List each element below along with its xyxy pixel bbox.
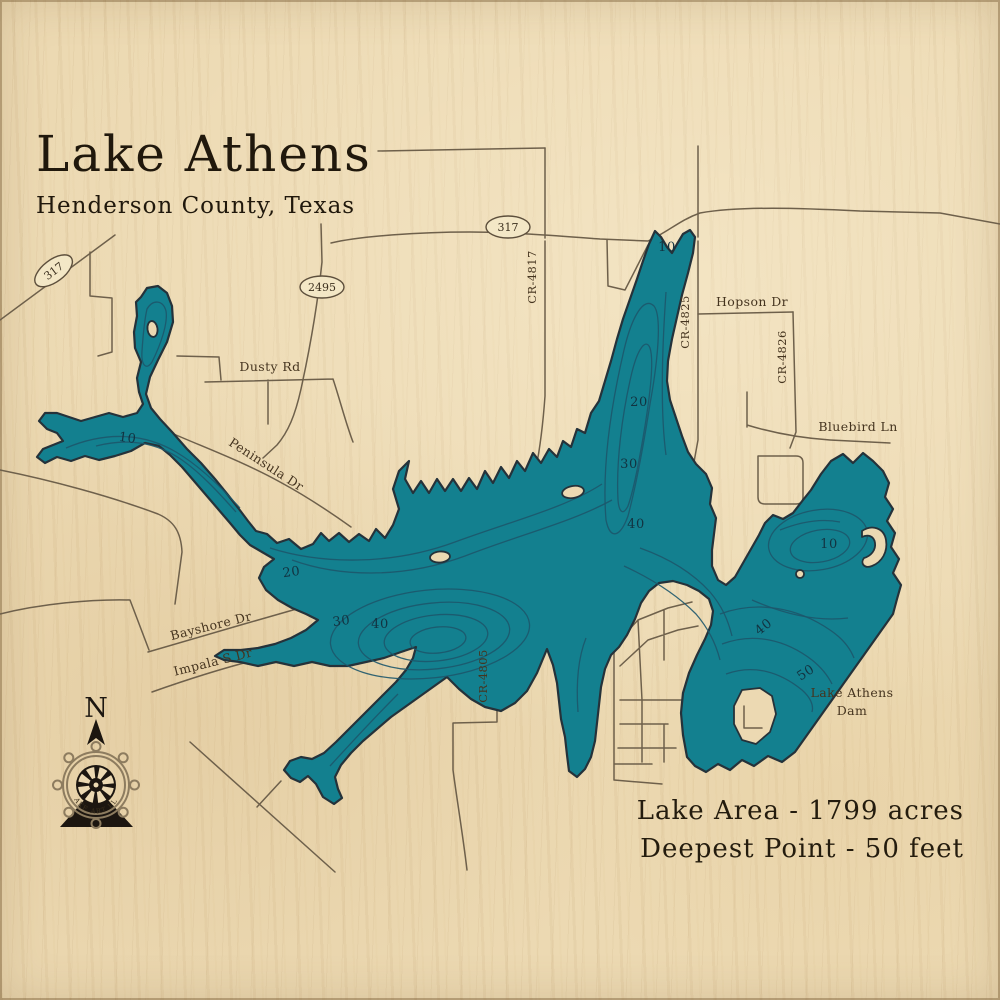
depth-label: 30 — [620, 457, 638, 472]
depth-label: 40 — [627, 517, 645, 532]
road-cr4825 — [694, 146, 698, 462]
road-cr4817 — [536, 148, 545, 468]
depth-label: 40 — [371, 617, 389, 632]
road-peninsula — [160, 428, 351, 527]
road-dusty-west — [177, 356, 221, 380]
road-west-low — [0, 470, 182, 604]
depth-label: 20 — [282, 564, 302, 581]
road-label: Lake Athens — [811, 685, 894, 700]
title-block: Lake Athens Henderson County, Texas — [36, 128, 372, 219]
map-title: Lake Athens — [36, 128, 372, 181]
road-label: Dam — [837, 703, 868, 718]
road-stepped-nw — [90, 252, 112, 356]
road-label: Peninsula Dr — [226, 435, 306, 494]
road-label: Dusty Rd — [239, 359, 300, 374]
road-dusty — [205, 379, 353, 442]
highway-shields: 3173172495 — [29, 216, 530, 298]
road-top-horizontal — [378, 148, 545, 151]
depth-label: 10 — [118, 430, 138, 447]
depth-label: 10 — [820, 537, 838, 552]
road-label: CR-4817 — [525, 250, 539, 303]
road-label: CR-4825 — [678, 295, 692, 348]
wood-map-panel: 3173172495 Dusty RdHopson DrBluebird LnP… — [0, 0, 1000, 1000]
road-bluebird — [747, 392, 890, 443]
highway-shield: 317 — [29, 249, 77, 293]
highway-shield: 317 — [486, 216, 530, 238]
highway-shield: 2495 — [300, 276, 344, 298]
road-2495 — [263, 224, 322, 458]
road-west-edge — [0, 600, 149, 650]
depth-label: 10 — [658, 240, 676, 255]
deepest-point-stat: Deepest Point - 50 feet — [637, 830, 964, 868]
road-cr4826 — [790, 312, 796, 448]
road-317-top — [331, 208, 1000, 243]
depth-label: 30 — [332, 613, 352, 630]
road-label: Impala S Dr — [172, 645, 254, 679]
road-label: CR-4805 — [476, 649, 490, 702]
depth-label: 20 — [630, 395, 648, 410]
lake-area-stat: Lake Area - 1799 acres — [637, 792, 964, 830]
lake-layer — [37, 230, 901, 804]
road-label: Bluebird Ln — [818, 419, 897, 434]
road-label: Bayshore Dr — [169, 608, 254, 643]
road-label: CR-4826 — [775, 330, 789, 383]
road-bluebird-loop — [758, 456, 803, 504]
lake-stats: Lake Area - 1799 acres Deepest Point - 5… — [637, 792, 964, 868]
shield-number: 317 — [498, 221, 519, 234]
road-hopson — [698, 312, 793, 314]
road-label: Hopson Dr — [716, 294, 788, 309]
map-subtitle: Henderson County, Texas — [36, 193, 372, 219]
shield-number: 2495 — [308, 281, 336, 294]
island-east-small — [796, 570, 804, 578]
